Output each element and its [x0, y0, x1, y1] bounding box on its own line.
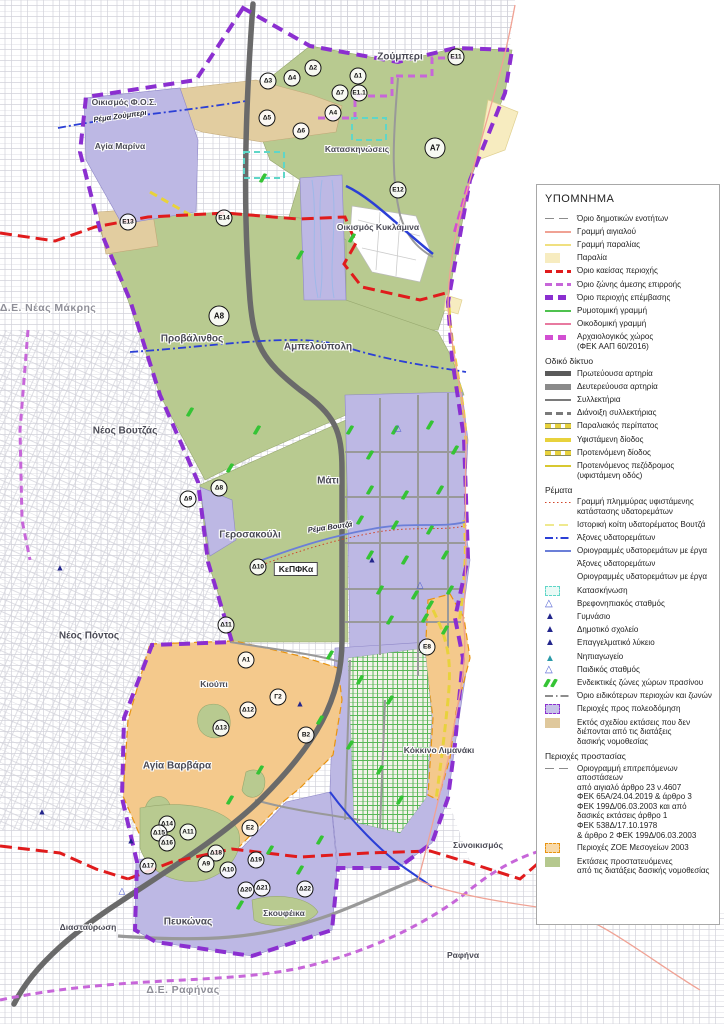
legend-title: ΥΠΟΜΝΗΜΑ [545, 193, 714, 205]
legend-symbol [545, 448, 571, 458]
legend-item-label: Προτεινόμενη δίοδος [577, 448, 651, 458]
legend-item-label: Οριογραμμή επιτρεπόμενων αποστάσεων από … [577, 764, 714, 841]
legend-item: Προτεινόμενος πεζόδρομος (υφιστάμενη οδό… [545, 459, 714, 481]
legend-symbol [545, 678, 571, 688]
legend-symbol [545, 718, 571, 728]
legend-item-label: Όριο δημοτικών ενοτήτων [577, 214, 668, 224]
legend-item: Αρχαιολογικός χώρος (ΦΕΚ ΑΑΠ 60/2016) [545, 331, 714, 353]
legend-item-label: Όριο καείσας περιοχής [577, 266, 658, 276]
legend-symbol [545, 586, 571, 596]
legend-item: Όριο ζώνης άμεσης επιρροής [545, 278, 714, 291]
legend-section-header: Περιοχές προστασίας [545, 751, 714, 761]
legend-item: Δευτερεύουσα αρτηρία [545, 380, 714, 393]
legend-symbol [545, 395, 571, 405]
legend-item-label: Υφιστάμενη δίοδος [577, 435, 643, 445]
legend-symbol [545, 497, 571, 507]
legend-item: ▲Νηπιαγωγείο [545, 650, 714, 663]
legend-item-label: Ιστορική κοίτη υδατορέματος Βουτζά [577, 520, 705, 530]
legend-item: Οριογραμμή επιτρεπόμενων αποστάσεων από … [545, 762, 714, 842]
map-sheet: ▲▲▲△△▲△▲ΖούμπεριΟικισμός Φ.Ο.Σ.Αγία Μαρί… [0, 0, 724, 1024]
legend-item: Γραμμή παραλίας [545, 238, 714, 251]
legend-section-header: Ρέματα [545, 485, 714, 495]
legend-symbol: △ [545, 665, 571, 675]
legend-symbol [545, 421, 571, 431]
legend-item-label: Όριο ζώνης άμεσης επιρροής [577, 280, 681, 290]
legend-symbol: △ [545, 599, 571, 609]
legend-symbol [545, 332, 571, 342]
legend-symbol [545, 546, 571, 556]
legend-symbol [545, 691, 571, 701]
legend-symbol [545, 253, 571, 263]
legend-item: Οριογραμμές υδατορεμάτων με έργα [545, 545, 714, 558]
legend-item-label: Πρωτεύουσα αρτηρία [577, 369, 653, 379]
legend-item-label: Περιοχές προς πολεοδόμηση [577, 704, 680, 714]
legend-item: Εκτάσεις προστατευόμενες από τις διατάξε… [545, 855, 714, 877]
legend-item-label: Διάνοιξη συλλεκτήριας [577, 408, 657, 418]
legend-item-label: Γυμνάσιο [577, 612, 610, 622]
legend-item: Πρωτεύουσα αρτηρία [545, 367, 714, 380]
legend-symbol [545, 572, 571, 582]
legend-item-label: Κατασκήνωση [577, 586, 628, 596]
legend-items: Όριο δημοτικών ενοτήτωνΓραμμή αιγιαλούΓρ… [545, 212, 714, 877]
legend-item: Παραλιακός περίπατος [545, 420, 714, 433]
legend-item: Παραλία [545, 252, 714, 265]
legend-item-label: Οριογραμμές υδατορεμάτων με έργα [577, 546, 707, 556]
legend-item-label: Οριογραμμές υδατορεμάτων με έργα [577, 572, 707, 582]
legend-symbol [545, 369, 571, 379]
legend-symbol [545, 857, 571, 867]
legend-symbol [545, 520, 571, 530]
legend-symbol [545, 764, 571, 774]
legend-item-label: Προτεινόμενος πεζόδρομος (υφιστάμενη οδό… [577, 461, 674, 480]
legend-symbol [545, 306, 571, 316]
legend-symbol [545, 382, 571, 392]
legend-item-label: Εκτάσεις προστατευόμενες από τις διατάξε… [577, 857, 709, 876]
legend-item: Γραμμή πλημμύρας υφιστάμενης κατάστασης … [545, 496, 714, 518]
legend-item-label: Νηπιαγωγείο [577, 652, 623, 662]
legend-symbol [545, 293, 571, 303]
legend-item: ▲Δημοτικό σχολείο [545, 624, 714, 637]
settlement-green-grid [348, 648, 432, 833]
legend-item-label: Περιοχές ΖΟΕ Μεσογείων 2003 [577, 843, 689, 853]
legend-item: Περιοχές ΖΟΕ Μεσογείων 2003 [545, 842, 714, 855]
legend-item-label: Παραλιακός περίπατος [577, 421, 658, 431]
legend-symbol [545, 704, 571, 714]
legend-item: Άξονες υδατορεμάτων [545, 531, 714, 544]
legend-item-label: Άξονες υδατορεμάτων [577, 533, 655, 543]
legend-item-label: Γραμμή αιγιαλού [577, 227, 636, 237]
legend-item-label: Αρχαιολογικός χώρος (ΦΕΚ ΑΑΠ 60/2016) [577, 332, 653, 351]
legend-item-label: Συλλεκτήρια [577, 395, 620, 405]
legend-item: Όριο δημοτικών ενοτήτων [545, 212, 714, 225]
legend-symbol [545, 461, 571, 471]
legend-symbol [545, 240, 571, 250]
legend-item-label: Ενδεικτικές ζώνες χώρων πρασίνου [577, 678, 703, 688]
legend-section-header: Οδικό δίκτυο [545, 356, 714, 366]
legend-item: △Παιδικός σταθμός [545, 663, 714, 676]
legend-item: Ρυμοτομική γραμμή [545, 304, 714, 317]
legend-item: Διάνοιξη συλλεκτήριας [545, 407, 714, 420]
legend-item: Άξονες υδατορεμάτων [545, 558, 714, 571]
legend-item: Γραμμή αιγιαλού [545, 225, 714, 238]
legend-symbol [545, 280, 571, 290]
legend-item-label: Όριο ειδικότερων περιοχών και ζωνών [577, 691, 712, 701]
legend-item-label: Όριο περιοχής επέμβασης [577, 293, 670, 303]
legend-item: Ιστορική κοίτη υδατορέματος Βουτζά [545, 518, 714, 531]
legend-item: ▲Επαγγελματικό λύκειο [545, 637, 714, 650]
legend-item-label: Ρυμοτομική γραμμή [577, 306, 647, 316]
legend-item: Όριο περιοχής επέμβασης [545, 291, 714, 304]
legend-item-label: Δευτερεύουσα αρτηρία [577, 382, 658, 392]
legend-symbol [545, 319, 571, 329]
legend-item-label: Παραλία [577, 253, 607, 263]
legend-symbol [545, 435, 571, 445]
legend-item-label: Επαγγελματικό λύκειο [577, 638, 655, 648]
legend-symbol: ▲ [545, 652, 571, 662]
legend-item-label: Παιδικός σταθμός [577, 665, 640, 675]
legend-item: Προτεινόμενη δίοδος [545, 446, 714, 459]
legend-item: Κατασκήνωση [545, 584, 714, 597]
legend-item-label: Οικοδομική γραμμή [577, 319, 646, 329]
legend-item: Περιοχές προς πολεοδόμηση [545, 703, 714, 716]
legend-item-label: Γραμμή παραλίας [577, 240, 640, 250]
legend-symbol [545, 214, 571, 224]
legend-panel: ΥΠΟΜΝΗΜΑ Όριο δημοτικών ενοτήτωνΓραμμή α… [536, 184, 720, 925]
legend-item: Ενδεικτικές ζώνες χώρων πρασίνου [545, 676, 714, 689]
legend-item-label: Δημοτικό σχολείο [577, 625, 638, 635]
legend-symbol [545, 843, 571, 853]
legend-symbol [545, 408, 571, 418]
legend-item: △Βρεφονηπιακός σταθμός [545, 597, 714, 610]
legend-item: Συλλεκτήρια [545, 393, 714, 406]
legend-item: Εκτός σχεδίου εκτάσεις που δεν διέπονται… [545, 716, 714, 748]
legend-item-label: Γραμμή πλημμύρας υφιστάμενης κατάστασης … [577, 497, 694, 516]
legend-symbol [545, 266, 571, 276]
legend-item-label: Εκτός σχεδίου εκτάσεις που δεν διέπονται… [577, 718, 690, 747]
legend-symbol: ▲ [545, 612, 571, 622]
legend-item-label: Βρεφονηπιακός σταθμός [577, 599, 665, 609]
legend-item-label: Άξονες υδατορεμάτων [577, 559, 655, 569]
legend-item: Οριογραμμές υδατορεμάτων με έργα [545, 571, 714, 584]
legend-item: Όριο καείσας περιοχής [545, 265, 714, 278]
legend-item: Οικοδομική γραμμή [545, 318, 714, 331]
legend-symbol: ▲ [545, 625, 571, 635]
legend-symbol [545, 559, 571, 569]
legend-item: Όριο ειδικότερων περιοχών και ζωνών [545, 690, 714, 703]
legend-symbol [545, 533, 571, 543]
legend-item: Υφιστάμενη δίοδος [545, 433, 714, 446]
legend-symbol [545, 227, 571, 237]
legend-item: ▲Γυμνάσιο [545, 610, 714, 623]
